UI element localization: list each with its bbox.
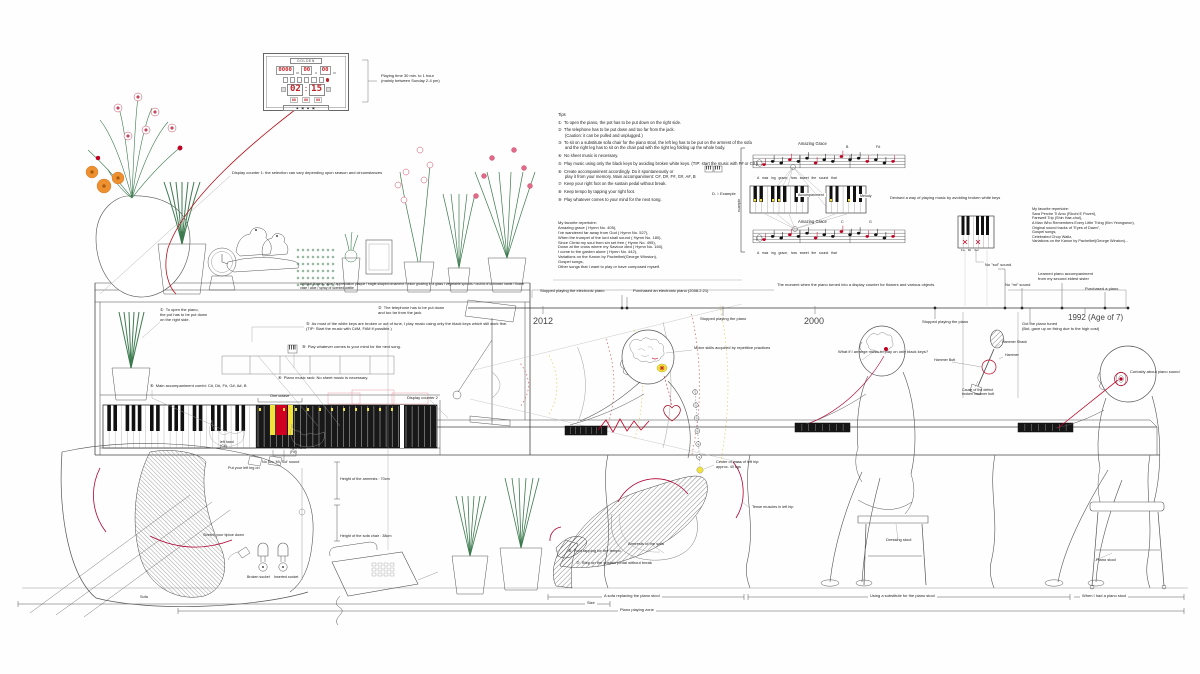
annotation-repertoire-right: My favorite repertoire:Sara Perche Ti Am… bbox=[1032, 207, 1135, 244]
annotation-amazing-grace-top: Amazing Grace bbox=[798, 141, 827, 146]
clock-time-row: 02 : 15 bbox=[269, 84, 343, 95]
annotation-chord-bottom-1: C bbox=[841, 220, 844, 224]
annotation-purchased-electronic: Purchased an electronic piano (2008.2.21… bbox=[633, 289, 708, 294]
annotation-piano-stool: Piano stool bbox=[1096, 558, 1116, 563]
unit-mark-icon bbox=[296, 72, 299, 75]
annotation-broken-socket: Broken socket bbox=[247, 575, 270, 579]
clock-brand-label: GOLDEN bbox=[290, 58, 322, 64]
clock-colon: : bbox=[305, 86, 307, 93]
annotation-stopped-piano-2: Stopped playing the piano bbox=[922, 320, 968, 325]
clock-button-strip: ◆ ▣ ◆ ▣ bbox=[283, 105, 329, 111]
weekday-box-icon bbox=[311, 77, 316, 82]
annotation-sofa-height: Height of the sofa chair : 38cm bbox=[340, 534, 392, 539]
annotation-tip1-note: ① To open the piano,the pot has to be pu… bbox=[160, 308, 207, 323]
annotation-tip9-note: ⑨ Play whatever comes to your mind for t… bbox=[302, 345, 401, 350]
annotation-inserted-socket: Inserted socket bbox=[274, 575, 298, 579]
annotation-tip5-note: ⑤ As most of the white keys are broken o… bbox=[306, 322, 532, 332]
annotation-hammer-shank: Hammer Shank bbox=[1002, 340, 1027, 344]
am-pm-mark-icon bbox=[281, 87, 286, 92]
annotation-melody-kbd: Melody bbox=[858, 194, 874, 198]
annotation-center-mass: Center of mass of left hip:approx. 40 kg… bbox=[716, 460, 759, 469]
annotation-purchased-piano: Purchased a piano bbox=[1085, 287, 1118, 292]
annotation-display-counter-2: Display counter 2 bbox=[407, 396, 438, 401]
weekday-box-icon bbox=[290, 77, 295, 82]
annotation-size-label: Size bbox=[585, 601, 597, 606]
weekday-box-icon bbox=[297, 77, 302, 82]
clock-minute: 15 bbox=[309, 84, 325, 95]
annotation-year-1992: 1992 (Age of 7) bbox=[1068, 313, 1123, 323]
annotation-layer: Playing time 30 min. to 1 hour(mainly be… bbox=[0, 0, 1200, 674]
annotation-foot-tapping: ⑧ Foot tapping for the tempo bbox=[568, 549, 621, 554]
annotation-curiosity: Curiosity about piano sound bbox=[1130, 370, 1188, 375]
annotation-put-left-leg: Put your left leg on bbox=[228, 466, 260, 471]
annotation-right-hand: right hand(F#) bbox=[290, 446, 306, 455]
unit-mark-icon bbox=[315, 72, 318, 75]
annotation-display-counter-1: Display counter 1: the selection can var… bbox=[232, 171, 382, 176]
annotation-no-do-mi-sol: No 'Do, Mi, Sol' sound bbox=[262, 460, 299, 465]
clock-temp-digits: 00 bbox=[290, 97, 298, 103]
annotation-sofa-corner: Sofa bbox=[140, 595, 148, 600]
annotation-cause-defect: Cause of the defectbroken hammer butt bbox=[962, 388, 994, 397]
annotation-chord-bottom-2: G bbox=[869, 220, 872, 224]
diagram-canvas: Playing time 30 min. to 1 hour(mainly be… bbox=[0, 0, 1200, 674]
annotation-playing-time: Playing time 30 min. to 1 hour(mainly be… bbox=[381, 74, 440, 84]
annotation-d-example: D. ♭ Example bbox=[712, 192, 736, 197]
clock-sensor-row: 00 00 00 bbox=[269, 97, 343, 103]
annotation-motor-skills: Motor skills acquired by repetitive prac… bbox=[694, 346, 770, 351]
annotation-year-2012: 2012 bbox=[533, 316, 553, 327]
annotation-tense-muscles: Tense muscles in left hip bbox=[752, 505, 793, 510]
annotation-tip6-note: ⑥ Main accompaniment combi: C#, D#, F#, … bbox=[150, 384, 247, 389]
annotation-armrest-height: Height of the armrests : 70cm bbox=[340, 477, 390, 482]
clock-date-digits: 0000 bbox=[276, 66, 293, 75]
annotation-sofa-replacing: A sofa replacing the piano stool bbox=[602, 594, 662, 599]
annotation-devised: Devised a way of playing music by avoidi… bbox=[890, 196, 1000, 201]
annotation-hammer-butt: Hammer Butt bbox=[934, 358, 955, 362]
clock-hour: 02 bbox=[287, 84, 303, 95]
temp-mark-icon bbox=[326, 87, 331, 92]
annotation-moment-display: The moment when the piano turned into a … bbox=[777, 283, 934, 288]
annotation-one-octave: One octave bbox=[270, 394, 289, 399]
clock-day-digits: 00 bbox=[320, 66, 331, 75]
annotation-stopped-electronic: Stopped playing the electronic piano bbox=[540, 289, 605, 294]
annotation-no-mi-sound: No "mi" sound bbox=[1005, 283, 1030, 288]
annotation-tip2-note: ② The telephone has to be put downand to… bbox=[378, 306, 476, 316]
annotation-what-if: What if I arrange music to play on only … bbox=[838, 350, 930, 355]
annotation-dressing-stool: Dressing stool bbox=[886, 538, 911, 543]
annotation-shelf-items: Artificial flowers / aloe / appreciation… bbox=[300, 282, 532, 290]
digital-clock-panel: GOLDEN 0000 00 00 02 : 15 00 00 00 ◆ ▣ ◆… bbox=[263, 53, 349, 111]
clock-weekday-row bbox=[269, 77, 343, 82]
annotation-hammer: Hammer bbox=[1005, 353, 1019, 357]
annotation-repertoire-left: My favorite repertoire:Amazing grace ( H… bbox=[558, 221, 663, 270]
sunday-dot-icon bbox=[326, 78, 329, 81]
clock-humidity-digits: 00 bbox=[302, 97, 310, 103]
annotation-no-sol-sound: No "sol" sound bbox=[985, 263, 1011, 268]
annotation-chord-top-2: F# bbox=[876, 145, 880, 149]
clock-month-digits: 00 bbox=[301, 66, 312, 75]
annotation-substitute-stool: Using a substitute for the piano stool bbox=[868, 594, 937, 599]
annotation-accompaniment-kbd: Accompaniment bbox=[796, 193, 826, 197]
annotation-amazing-grace-bottom: Amazing Grace bbox=[798, 219, 827, 224]
annotation-lyrics-top: A maz ing grace, how sweet the sound tha… bbox=[757, 176, 837, 180]
annotation-tiptoe: Stretch your tiptoe down bbox=[203, 533, 244, 538]
annotation-chord-top-1: B bbox=[846, 145, 848, 149]
annotation-year-2000: 2000 bbox=[804, 316, 824, 327]
annotation-stopped-piano-1: Stopped playing the piano bbox=[700, 317, 746, 322]
weekday-box-icon bbox=[283, 77, 288, 82]
annotation-tip4-note: ④ Piano music rack: No sheet music is ne… bbox=[278, 376, 368, 381]
weekday-box-icon bbox=[304, 77, 309, 82]
clock-date-row: 0000 00 00 bbox=[269, 66, 343, 75]
annotation-got-tuned: Got the piano tuned(But, gave up on fixi… bbox=[1022, 322, 1099, 332]
annotation-example-vert: example bbox=[737, 199, 741, 212]
annotation-when-piano-stool: When I had a piano stool bbox=[1080, 594, 1128, 599]
annotation-left-hand: left hand(C#) bbox=[220, 440, 234, 449]
weekday-box-icon bbox=[319, 77, 324, 82]
annotation-learned-accomp: Learned piano accompanimentfrom my secon… bbox=[1038, 272, 1093, 282]
annotation-lyrics-bottom: A maz ing grace, how sweet the sound tha… bbox=[757, 251, 837, 255]
annotation-piano-playing-zone: Piano playing zone bbox=[618, 608, 656, 613]
clock-extra-digits: 00 bbox=[314, 97, 322, 103]
annotation-fa-mi-sol: Fa Mi Sol bbox=[961, 249, 979, 253]
annotation-sustain-step: ⑦ Step on the sustain pedal without brea… bbox=[576, 561, 652, 566]
unit-mark-icon bbox=[333, 72, 336, 75]
annotation-armrests-sofa: Armrests of the sofa bbox=[628, 542, 664, 547]
annotation-tips: Tips① To open the piano, the pot has to … bbox=[558, 112, 757, 202]
